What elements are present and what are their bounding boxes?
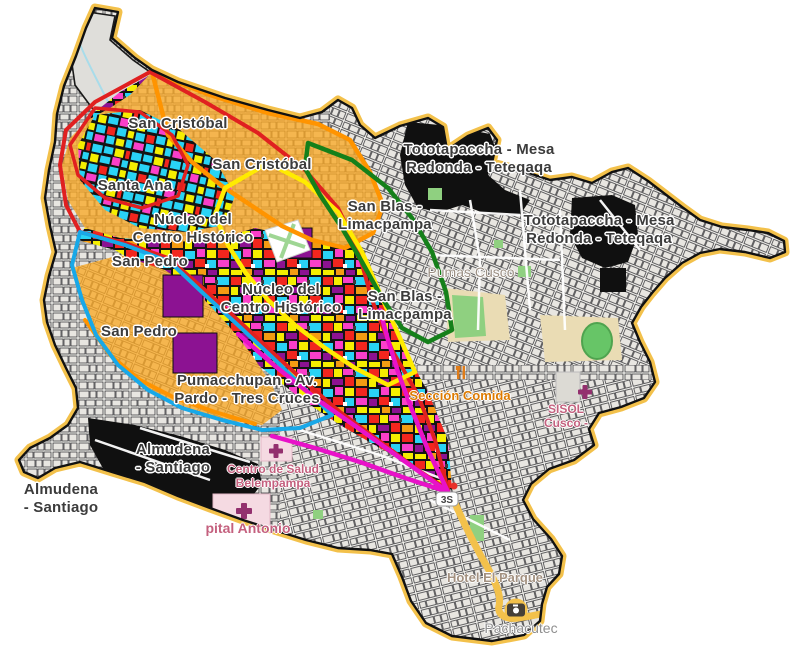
- sports-field: [452, 295, 486, 338]
- map-canvas[interactable]: 3S San Cristóbal San Cristóbal Santa Ana…: [0, 0, 800, 650]
- camera-icon: [507, 604, 525, 617]
- route-shield-label: 3S: [441, 495, 454, 506]
- route-shield: 3S: [436, 492, 458, 506]
- cusco-zoning-map: 3S: [0, 0, 800, 650]
- sisol-building: [556, 372, 580, 402]
- stadium-track: [582, 323, 612, 359]
- poi-marker-red: [451, 483, 458, 490]
- district-interior: 3S: [0, 0, 800, 650]
- black-zone-east-small: [600, 268, 626, 292]
